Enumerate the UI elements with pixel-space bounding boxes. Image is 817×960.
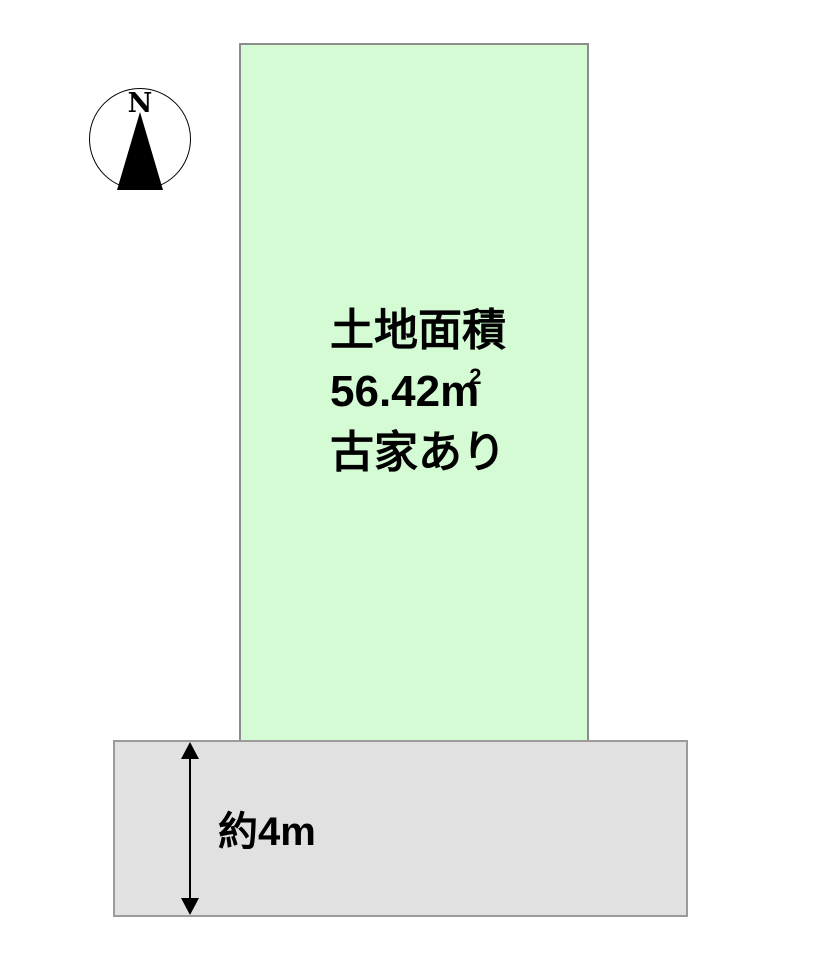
site-plan-canvas: N 土地面積 56.42m2 古家あり 約4m [0,0,817,960]
compass: N [89,88,191,192]
arrowhead-down-icon [181,898,199,915]
area-number: 56.42 [330,367,440,416]
parcel-info: 土地面積 56.42m2 古家あり [330,300,506,483]
road-width-label: 約4m [218,808,316,856]
old-house-note: 古家あり [330,422,506,483]
road-width-arrow [179,742,201,915]
land-parcel: 土地面積 56.42m2 古家あり [239,43,589,742]
arrow-line [189,747,191,910]
land-area-label: 土地面積 [330,300,506,361]
land-area-value: 56.42m2 [330,361,506,422]
area-unit-exponent: 2 [469,366,481,388]
